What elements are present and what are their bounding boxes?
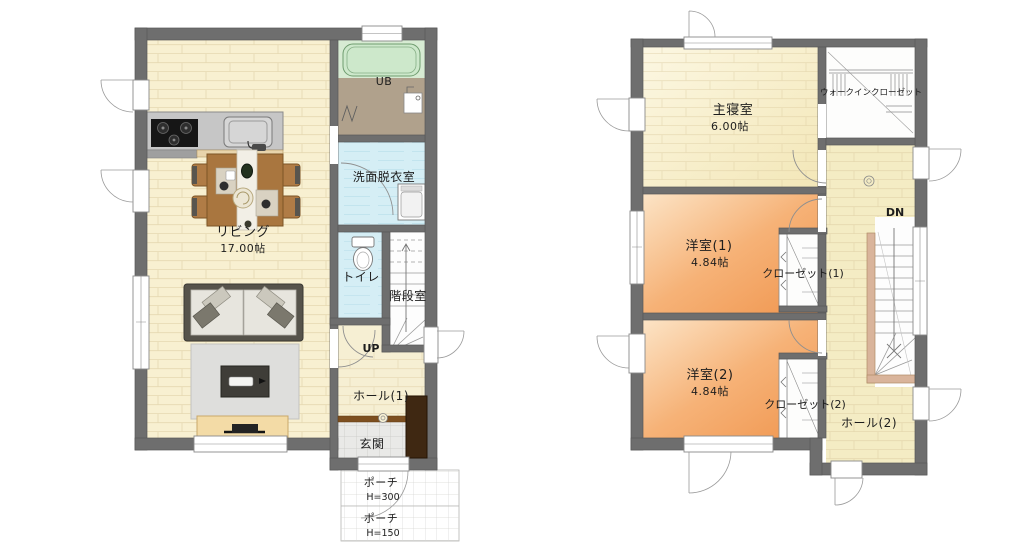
window-living-left-1	[101, 80, 149, 112]
plate	[220, 182, 229, 191]
label-hall1: ホール(1)	[353, 389, 409, 403]
label-porch-lower-height: H=150	[366, 528, 399, 539]
label-room1-size: 4.84帖	[691, 256, 729, 269]
label-porch-upper: ポーチ	[364, 476, 399, 489]
label-ub: UB	[376, 75, 393, 88]
window-stairs-right	[913, 227, 927, 335]
lazy-susan	[233, 188, 253, 208]
label-room2-size: 4.84帖	[691, 385, 729, 398]
coffee-table	[221, 366, 269, 397]
toilet-fixture	[352, 237, 374, 271]
tv-board	[197, 416, 288, 439]
label-toilet: トイレ	[342, 270, 380, 284]
sofa	[184, 284, 303, 341]
label-closet1: クローゼット(1)	[762, 267, 844, 280]
window-master-top	[684, 11, 772, 49]
label-wic: ウォークインクローゼット	[820, 87, 922, 98]
window-hall-right-2	[913, 387, 961, 421]
label-living: リビング	[216, 225, 270, 240]
door-knob-1f	[379, 414, 388, 423]
window-ub-top	[362, 26, 402, 41]
door-stairwell-exterior	[424, 327, 464, 363]
window-hall-right-1	[913, 147, 961, 181]
floorplan-canvas: UB 洗面脱衣室 リビング 17.00帖 トイレ 階段室 UP ホール(1) 玄…	[0, 0, 1024, 551]
door-knob-2f	[864, 176, 874, 186]
window-living-bottom	[194, 436, 287, 452]
stair-handrail-vertical	[867, 233, 875, 383]
floor2-plan: 主寝室 6.00帖 ウォークインクローゼット 洋室(1) 4.84帖 クローゼッ…	[597, 11, 961, 505]
label-porch-lower: ポーチ	[364, 512, 399, 525]
label-room2: 洋室(2)	[687, 367, 734, 383]
kitchen-counter	[147, 112, 283, 158]
tv	[232, 424, 258, 433]
window-hall-bottom	[831, 461, 863, 505]
floorplan-drawing: UB 洗面脱衣室 リビング 17.00帖 トイレ 階段室 UP ホール(1) 玄…	[0, 0, 1024, 551]
label-porch-upper-height: H=300	[366, 492, 399, 503]
window-living-left-2	[101, 170, 149, 212]
plate	[262, 200, 271, 209]
label-hall2: ホール(2)	[841, 416, 897, 430]
label-master-bedroom: 主寝室	[713, 102, 754, 118]
sink	[224, 117, 272, 151]
entrance-threshold	[338, 416, 407, 422]
window-living-left-3	[133, 276, 149, 369]
stove	[151, 119, 198, 147]
label-entrance: 玄関	[359, 436, 384, 451]
label-washroom: 洗面脱衣室	[353, 169, 416, 184]
window-room2-bottom	[684, 436, 773, 493]
label-closet2: クローゼット(2)	[764, 398, 846, 411]
window-room2-left	[597, 334, 645, 373]
label-master-size: 6.00帖	[711, 120, 749, 133]
floor1-plan: UB 洗面脱衣室 リビング 17.00帖 トイレ 階段室 UP ホール(1) 玄…	[101, 26, 464, 541]
window-room1-left	[630, 211, 644, 284]
label-stair-room: 階段室	[389, 288, 427, 303]
kettle	[242, 164, 253, 178]
shoe-cabinet	[406, 396, 427, 458]
label-up: UP	[363, 342, 380, 355]
window-master-left	[597, 98, 645, 131]
vanity-unit	[398, 184, 425, 220]
stair-handrail-bottom	[867, 375, 915, 383]
porch	[341, 470, 459, 541]
label-living-size: 17.00帖	[220, 242, 266, 255]
label-room1: 洋室(1)	[686, 238, 733, 254]
label-dn: DN	[886, 206, 904, 219]
bathtub	[343, 44, 420, 76]
